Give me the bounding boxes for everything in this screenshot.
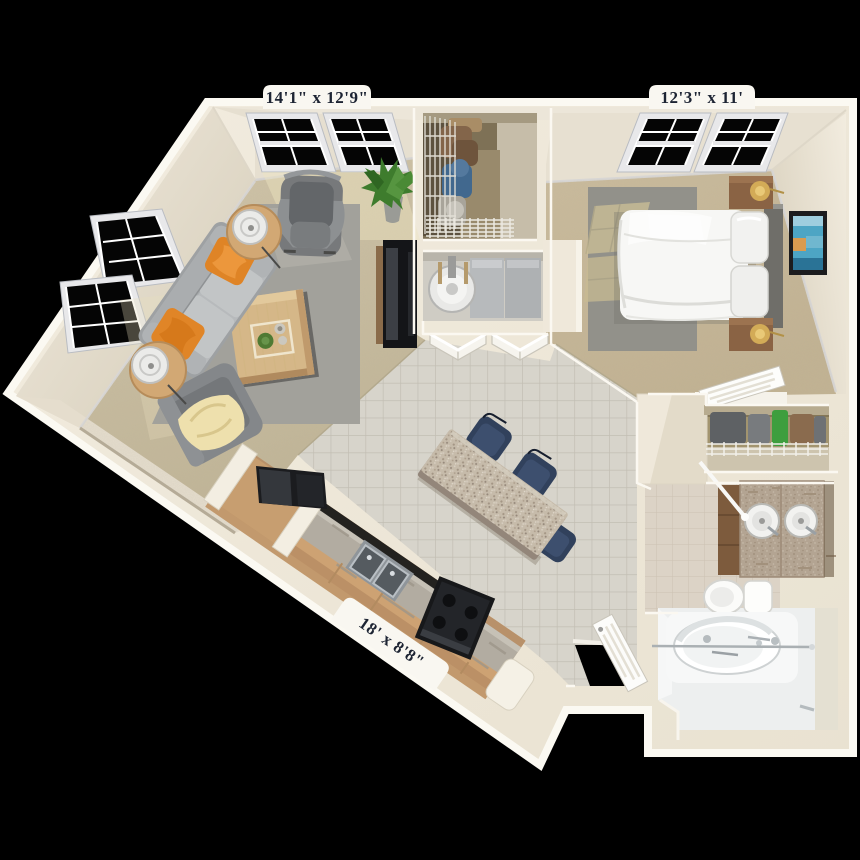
svg-text:14'1" x 12'9": 14'1" x 12'9" [266, 88, 369, 107]
svg-text:12'3" x 11': 12'3" x 11' [661, 88, 744, 107]
